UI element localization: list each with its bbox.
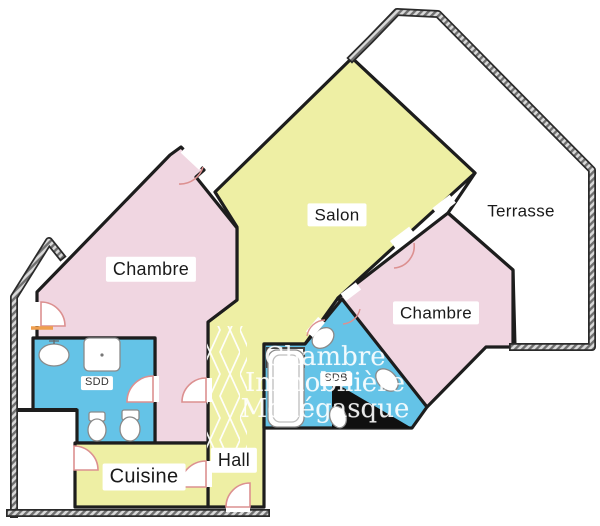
lattice-watermark bbox=[207, 326, 247, 450]
floor-plan-page: { "plan": { "rooms": { "chambre_left": {… bbox=[0, 0, 600, 526]
room-label-hall: Hall bbox=[211, 448, 257, 473]
room-label-cuisine: Cuisine bbox=[103, 464, 186, 491]
floor-plan-drawing bbox=[0, 0, 600, 526]
room-label-sdb: SDB bbox=[320, 372, 352, 386]
room-label-terrasse: Terrasse bbox=[487, 200, 555, 221]
sdd-bidet bbox=[120, 417, 140, 441]
sdd-toilet bbox=[88, 419, 106, 441]
room-label-chambre-left: Chambre bbox=[106, 257, 196, 282]
room-label-chambre-right: Chambre bbox=[393, 301, 479, 324]
room-label-sdd: SDD bbox=[81, 376, 113, 390]
room-label-salon: Salon bbox=[308, 203, 367, 226]
sdd-sink bbox=[39, 344, 69, 366]
